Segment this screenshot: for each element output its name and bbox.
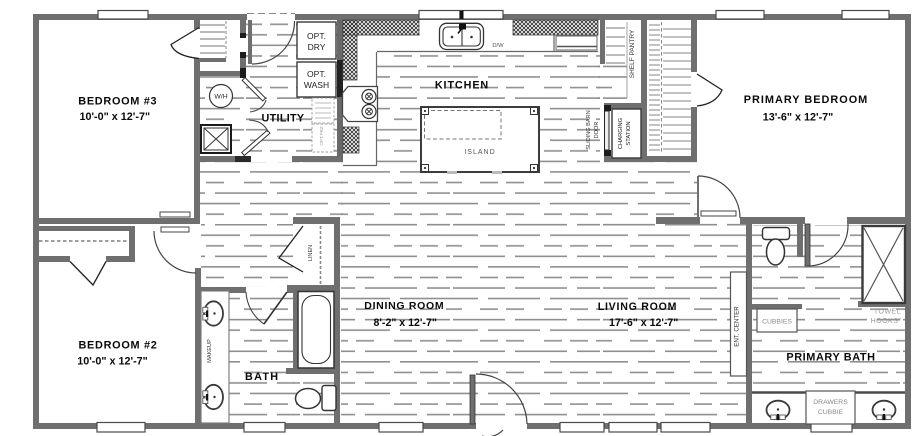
svg-text:ENT. CENTER: ENT. CENTER xyxy=(734,306,741,347)
svg-text:DRY: DRY xyxy=(308,42,326,52)
svg-text:CHARGING: CHARGING xyxy=(618,117,624,149)
svg-text:ISLAND: ISLAND xyxy=(464,149,495,156)
svg-text:MAKEUP: MAKEUP xyxy=(207,339,213,363)
svg-text:"TOWEL: "TOWEL xyxy=(871,309,901,316)
svg-text:BATH: BATH xyxy=(245,371,279,383)
svg-text:10'-0" x 12'-7": 10'-0" x 12'-7" xyxy=(77,356,148,368)
svg-text:PRIMARY BATH: PRIMARY BATH xyxy=(786,352,875,364)
svg-text:OPT.: OPT. xyxy=(307,69,326,79)
svg-text:LINEN: LINEN xyxy=(308,245,314,261)
svg-text:17'-6" x 12'-7": 17'-6" x 12'-7" xyxy=(609,317,678,329)
svg-text:BEDROOM #3: BEDROOM #3 xyxy=(78,95,157,107)
svg-text:KITCHEN: KITCHEN xyxy=(435,80,489,92)
svg-text:10'-0" x 12'-7": 10'-0" x 12'-7" xyxy=(79,111,150,123)
svg-text:BEDROOM #2: BEDROOM #2 xyxy=(78,340,157,352)
svg-text:DINING ROOM: DINING ROOM xyxy=(364,300,444,312)
svg-text:SHELF PANTRY: SHELF PANTRY xyxy=(629,29,636,78)
svg-text:UTILITY: UTILITY xyxy=(262,113,305,125)
svg-text:HOOKS": HOOKS" xyxy=(871,318,902,325)
svg-text:D/W: D/W xyxy=(492,43,504,49)
svg-text:CUBBIES: CUBBIES xyxy=(762,319,792,326)
svg-text:WASH: WASH xyxy=(304,80,329,90)
svg-text:PRIMARY BEDROOM: PRIMARY BEDROOM xyxy=(744,94,869,106)
svg-text:STATION: STATION xyxy=(626,121,632,145)
svg-text:OPT.: OPT. xyxy=(307,31,326,41)
svg-text:DOOR: DOOR xyxy=(594,122,600,139)
svg-text:OPT FRZ: OPT FRZ xyxy=(319,126,324,145)
svg-text:W/H: W/H xyxy=(214,94,227,101)
svg-text:DRAWERS: DRAWERS xyxy=(813,399,848,406)
svg-text:13'-6" x 12'-7": 13'-6" x 12'-7" xyxy=(763,112,834,124)
svg-text:LIVING ROOM: LIVING ROOM xyxy=(598,301,677,313)
svg-text:CUBBIE: CUBBIE xyxy=(818,409,844,416)
svg-text:8'-2" x 12'-7": 8'-2" x 12'-7" xyxy=(374,317,437,329)
svg-text:SLIDING BARN: SLIDING BARN xyxy=(586,110,592,149)
